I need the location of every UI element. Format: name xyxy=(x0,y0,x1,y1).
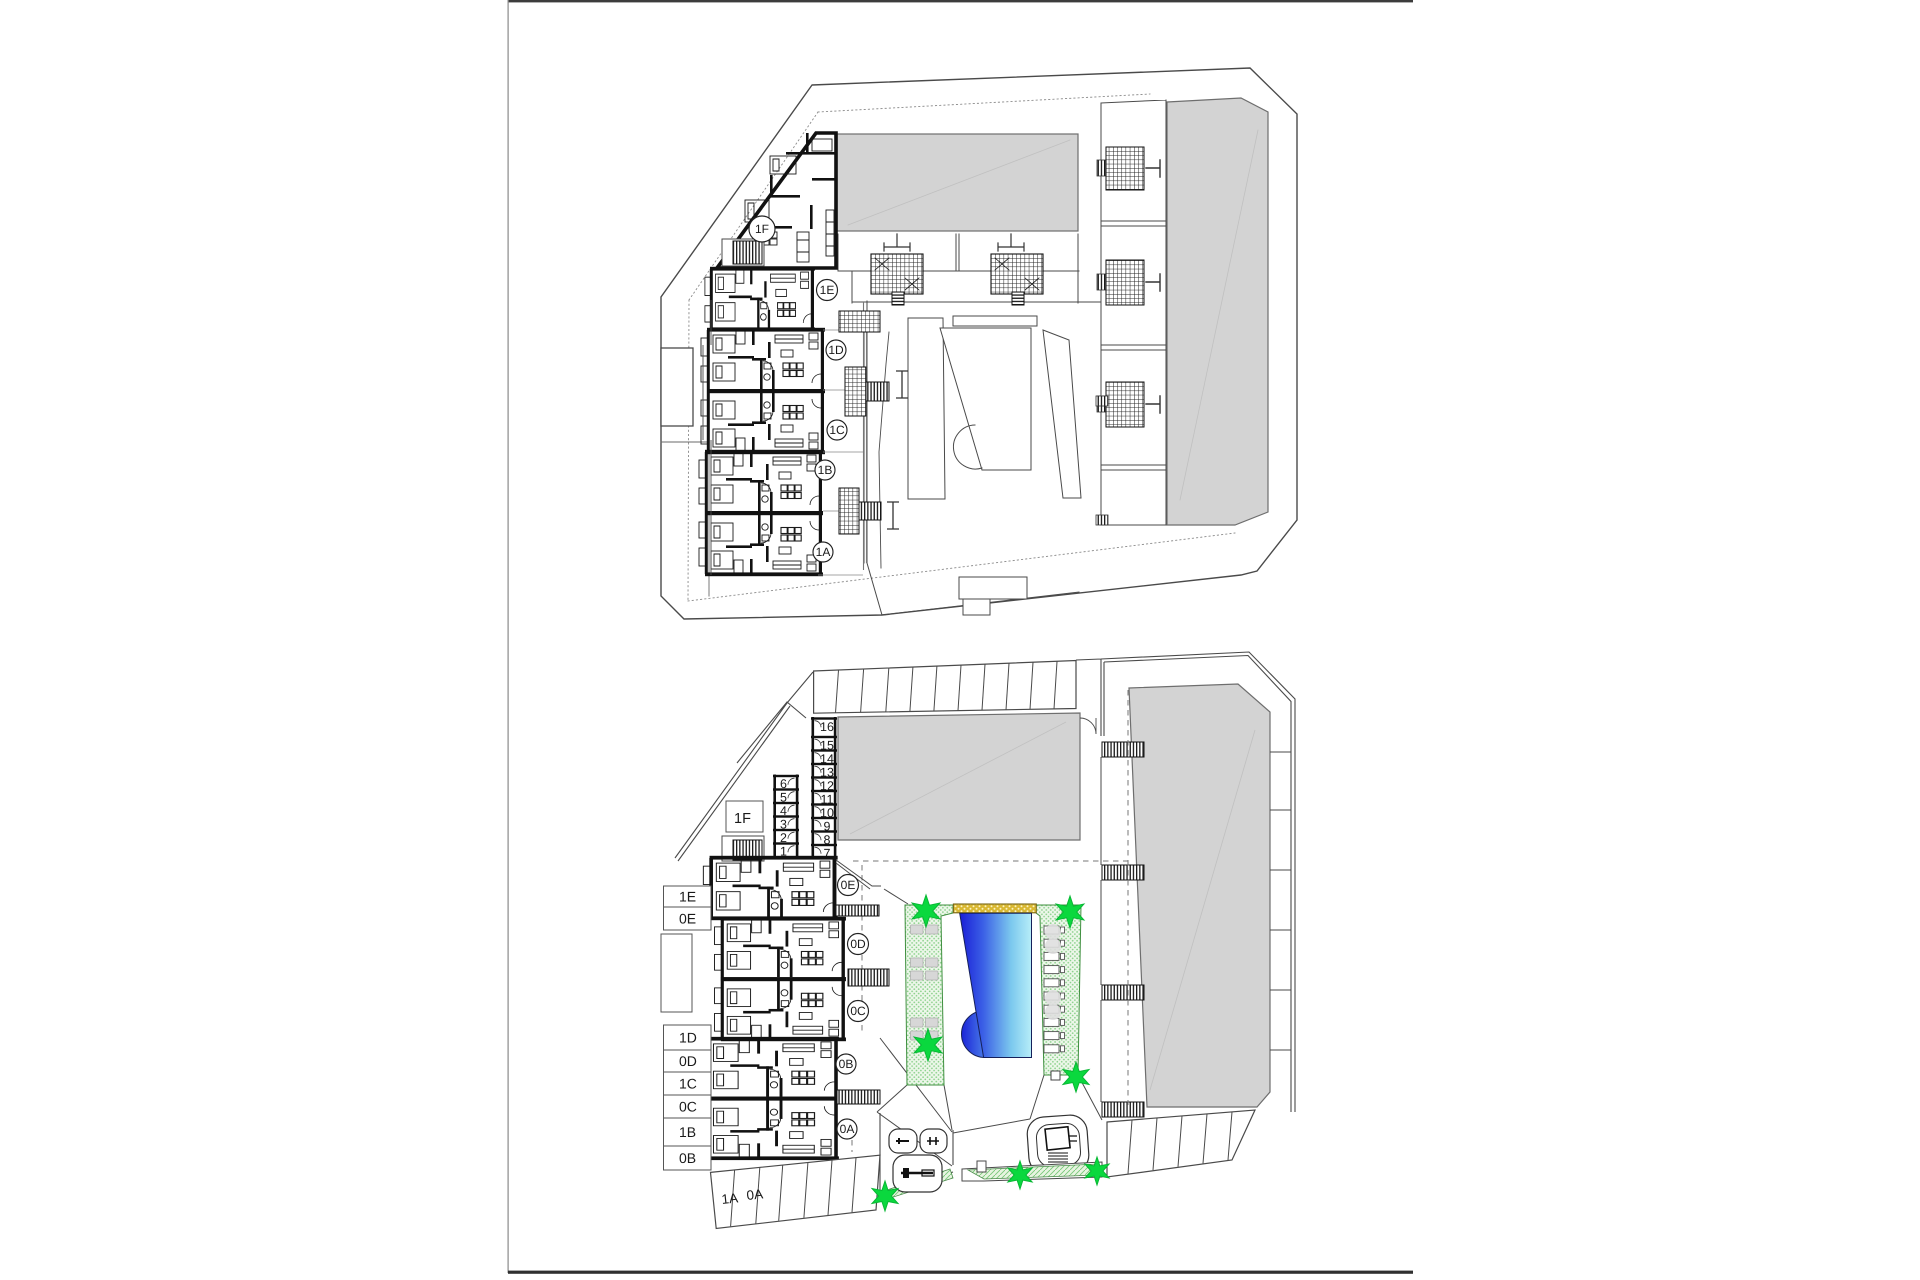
svg-text:3: 3 xyxy=(780,818,787,832)
svg-text:0C: 0C xyxy=(679,1099,697,1115)
svg-text:0B: 0B xyxy=(839,1057,854,1071)
svg-text:4: 4 xyxy=(780,804,787,818)
svg-text:12: 12 xyxy=(820,779,834,793)
svg-text:1C: 1C xyxy=(829,423,845,437)
svg-text:13: 13 xyxy=(820,765,834,779)
svg-text:11: 11 xyxy=(821,792,834,806)
svg-text:1E: 1E xyxy=(679,889,696,905)
svg-text:0D: 0D xyxy=(850,937,866,951)
svg-text:1B: 1B xyxy=(818,463,833,477)
svg-text:0C: 0C xyxy=(850,1004,866,1018)
svg-text:2: 2 xyxy=(780,831,787,845)
svg-text:0A: 0A xyxy=(840,1122,855,1136)
svg-text:1D: 1D xyxy=(828,343,844,357)
svg-text:0A: 0A xyxy=(746,1186,764,1203)
svg-text:5: 5 xyxy=(780,791,787,805)
svg-text:10: 10 xyxy=(820,806,834,820)
svg-text:0D: 0D xyxy=(679,1053,697,1069)
svg-text:1C: 1C xyxy=(679,1076,697,1092)
svg-text:1A: 1A xyxy=(816,545,831,559)
svg-text:1D: 1D xyxy=(679,1030,697,1046)
svg-text:8: 8 xyxy=(824,833,831,847)
svg-text:1B: 1B xyxy=(679,1124,696,1140)
svg-text:1E: 1E xyxy=(820,283,835,297)
svg-text:14: 14 xyxy=(820,752,834,766)
svg-text:6: 6 xyxy=(780,777,787,791)
svg-text:16: 16 xyxy=(820,720,834,734)
svg-text:0B: 0B xyxy=(679,1150,696,1166)
svg-text:0E: 0E xyxy=(841,878,856,892)
svg-text:1A: 1A xyxy=(721,1190,739,1207)
svg-text:1F: 1F xyxy=(755,222,769,236)
svg-text:9: 9 xyxy=(824,819,831,833)
svg-text:1F: 1F xyxy=(734,811,751,827)
svg-text:15: 15 xyxy=(820,738,834,752)
svg-text:0E: 0E xyxy=(679,911,696,927)
